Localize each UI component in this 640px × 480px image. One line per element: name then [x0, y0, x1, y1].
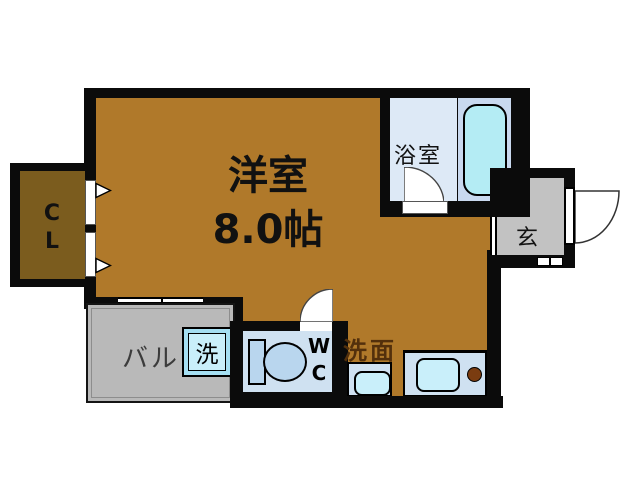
kitchen-counter: [403, 350, 487, 397]
wc-label-c: C: [306, 360, 332, 387]
closet-label: C L: [36, 200, 68, 256]
wall-right: [487, 250, 501, 408]
wc-label: W C: [306, 333, 332, 387]
washbasin: [347, 362, 392, 397]
kitchen-sink: [416, 358, 460, 392]
front-door-leaf: [564, 187, 575, 245]
washing-machine-label: 洗: [188, 333, 226, 371]
wc-label-w: W: [306, 333, 332, 360]
kitchen-burner-dot: [467, 367, 482, 382]
closet-label-l: L: [36, 228, 68, 256]
closet-label-c: C: [36, 200, 68, 228]
balcony-label: バル: [122, 338, 180, 375]
closet-door-triangle-top: [95, 182, 112, 199]
main-room-size: 8.0帖: [180, 206, 356, 254]
entrance-opening: [490, 217, 497, 255]
wall-bottom: [230, 396, 503, 408]
bathroom-door-arc: [404, 167, 444, 204]
front-door-arc: [575, 189, 622, 246]
wc-door-arc: [300, 289, 333, 322]
washing-machine: 洗: [182, 327, 232, 377]
main-room-name: 洋室: [180, 152, 356, 200]
entrance-label: 玄: [516, 220, 538, 252]
closet-door-triangle-bottom: [95, 257, 112, 274]
entrance-step-left: [537, 257, 550, 266]
floorplan: バル 洗 W C 洗面 浴室 玄: [0, 0, 640, 480]
bathroom-label: 浴室: [394, 138, 442, 170]
washroom-label: 洗面: [343, 331, 397, 366]
wc-door-gap: [300, 321, 332, 331]
entrance-step: [537, 257, 563, 266]
entrance-step-right: [550, 257, 563, 266]
washbasin-bowl: [354, 371, 391, 396]
toilet-bowl: [263, 342, 307, 382]
bathroom-door-leaf: [402, 201, 448, 214]
